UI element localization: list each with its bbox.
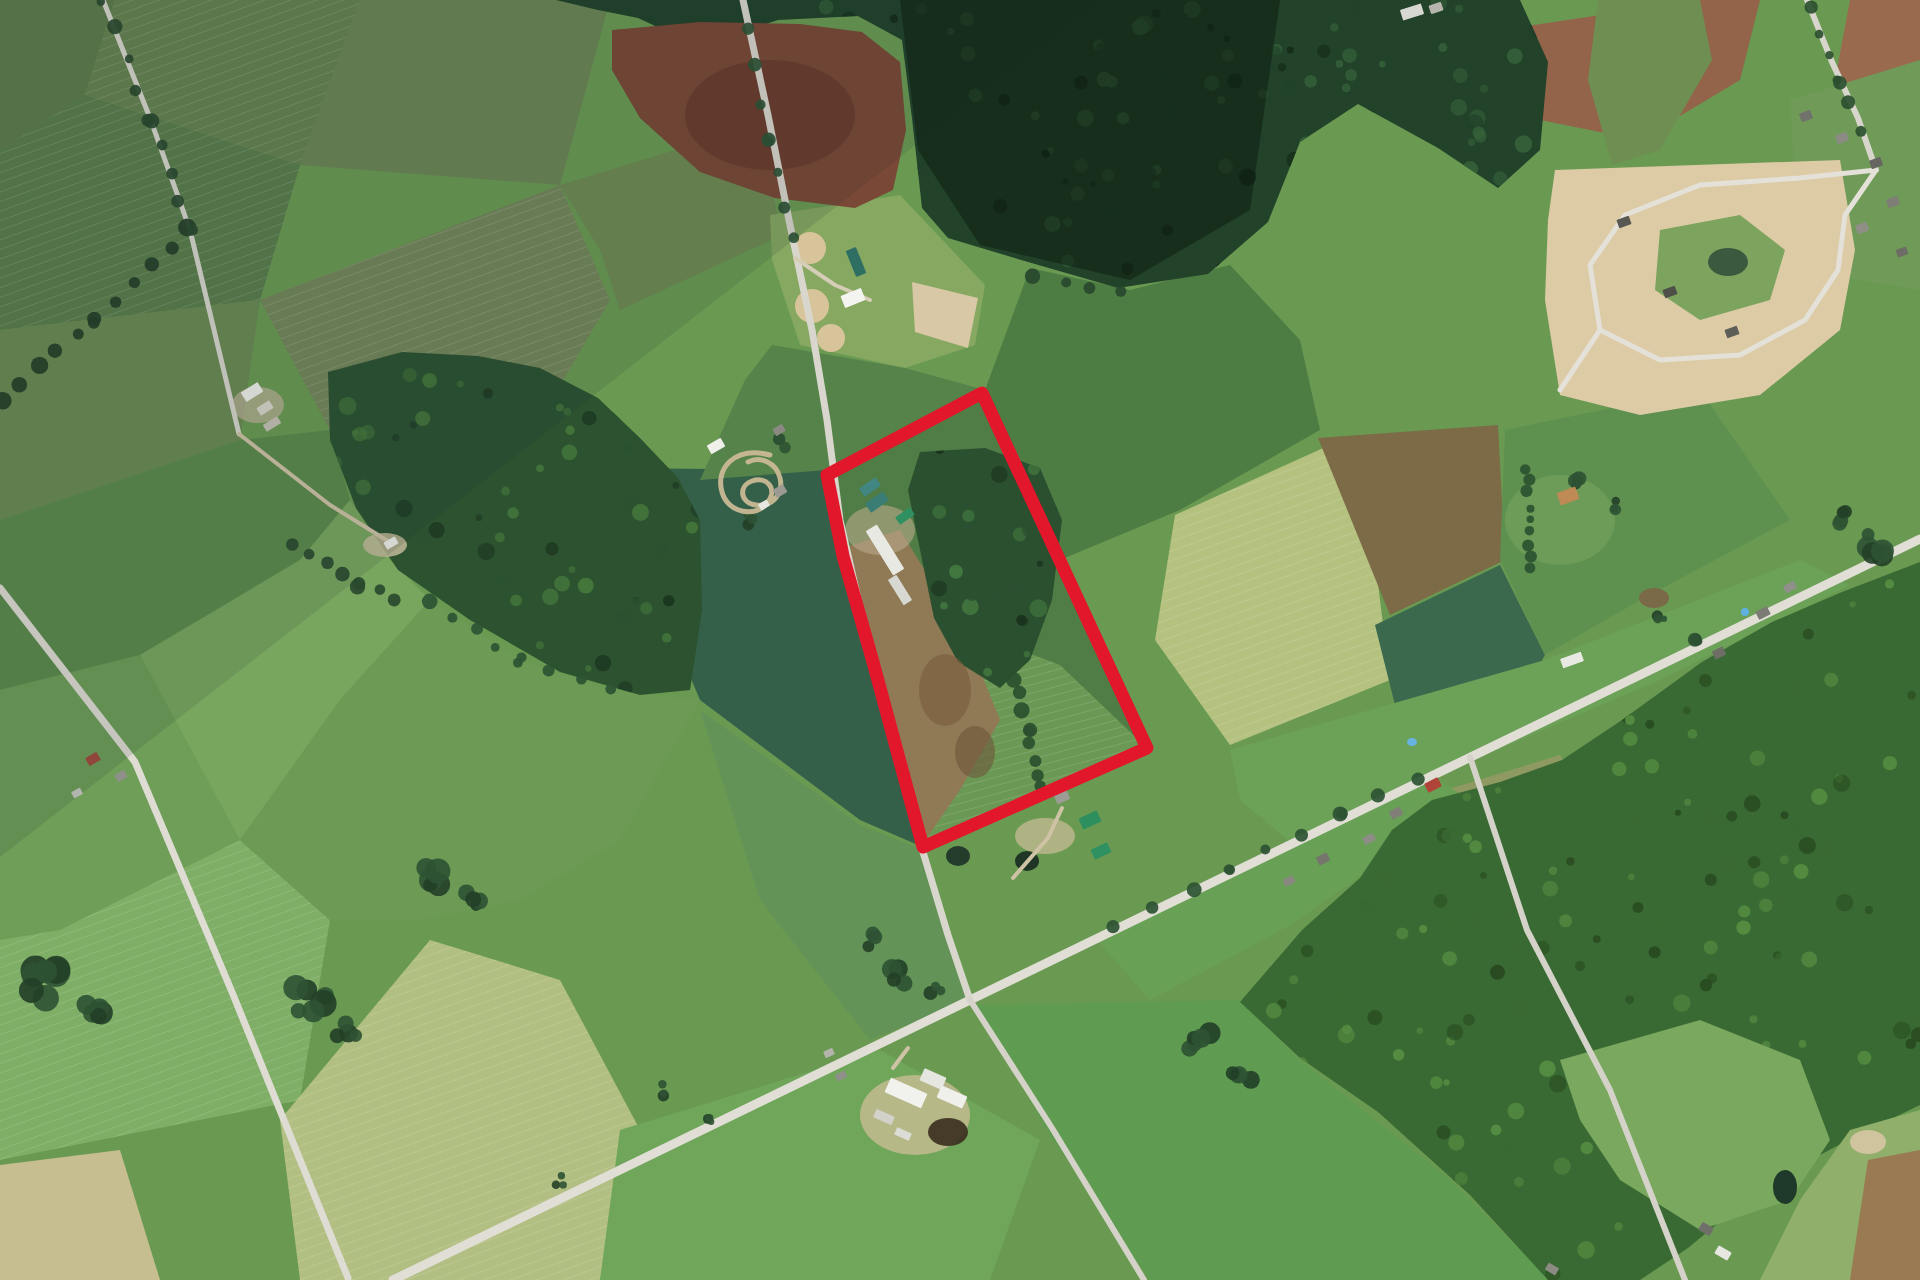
canopy-dot — [1472, 792, 1478, 798]
canopy-dot — [1675, 810, 1681, 816]
tree-dot — [422, 594, 438, 610]
tree-dot — [779, 442, 791, 454]
canopy-dot — [1883, 756, 1897, 770]
canopy-dot — [662, 633, 672, 643]
canopy-dot — [1468, 139, 1475, 146]
tree-dot — [1023, 737, 1036, 750]
canopy-dot — [1430, 1076, 1443, 1089]
canopy-dot — [1803, 629, 1814, 640]
canopy-dot — [1419, 925, 1427, 933]
canopy-dot — [582, 411, 597, 426]
canopy-dot — [663, 595, 674, 606]
tree-dot — [1006, 672, 1022, 688]
canopy-dot — [1504, 1144, 1511, 1151]
tree-dot — [447, 613, 457, 623]
canopy-dot — [1764, 971, 1773, 980]
canopy-dot — [1629, 813, 1640, 824]
canopy-dot — [1029, 599, 1047, 617]
canopy-dot — [1019, 616, 1029, 626]
canopy-dot — [1744, 795, 1761, 812]
canopy-dot — [1379, 61, 1385, 67]
soil-blob — [955, 726, 995, 778]
canopy-dot — [478, 543, 495, 560]
tree-dot — [1115, 286, 1126, 297]
canopy-dot — [1396, 927, 1408, 939]
tree-dot — [1527, 505, 1535, 513]
canopy-dot — [1448, 1135, 1464, 1151]
manure-pond — [928, 1118, 968, 1146]
canopy-dot — [595, 655, 611, 671]
canopy-dot — [1704, 941, 1718, 955]
canopy-dot — [1753, 871, 1770, 888]
canopy-dot — [1450, 99, 1467, 116]
tree-dot — [1688, 633, 1702, 647]
canopy-dot — [1702, 811, 1717, 826]
pond — [946, 846, 970, 866]
tree-dot — [605, 684, 616, 695]
canopy-dot — [1683, 707, 1691, 715]
canopy-dot — [1722, 857, 1736, 871]
canopy-dot — [1463, 1014, 1475, 1026]
canopy-dot — [1726, 811, 1737, 822]
canopy-dot — [1893, 1021, 1911, 1039]
canopy-dot — [1907, 691, 1916, 700]
canopy-dot — [940, 206, 947, 213]
canopy-dot — [1442, 951, 1457, 966]
canopy-dot — [1463, 834, 1472, 843]
tree-dot — [471, 623, 483, 635]
canopy-dot — [932, 505, 946, 519]
canopy-dot — [983, 668, 992, 677]
canopy-dot — [498, 578, 507, 587]
canopy-dot — [1799, 837, 1816, 854]
tree-dot — [291, 1003, 306, 1018]
canopy-dot — [1749, 1015, 1757, 1023]
tree-dot — [1013, 686, 1026, 699]
canopy-dot — [1692, 861, 1706, 875]
canopy-dot — [1447, 1024, 1464, 1041]
canopy-dot — [1575, 961, 1585, 971]
tree-dot — [1525, 550, 1537, 562]
tree-dot — [349, 1029, 362, 1042]
canopy-dot — [1376, 1077, 1386, 1087]
canopy-dot — [1336, 60, 1344, 68]
canopy-dot — [1377, 869, 1392, 884]
canopy-dot — [1418, 78, 1426, 86]
tree-dot — [1295, 829, 1308, 842]
canopy-dot — [1766, 801, 1775, 810]
canopy-dot — [1792, 825, 1798, 831]
canopy-dot — [1495, 787, 1501, 793]
canopy-dot — [1342, 48, 1357, 63]
canopy-dot — [1514, 1177, 1524, 1187]
canopy-dot — [463, 564, 470, 571]
canopy-dot — [1278, 63, 1286, 71]
sand-patch — [1850, 1130, 1886, 1154]
canopy-dot — [1330, 23, 1338, 31]
canopy-dot — [1507, 48, 1523, 64]
tree-dot — [660, 1090, 667, 1097]
tree-dot — [491, 643, 500, 652]
canopy-dot — [1437, 1125, 1451, 1139]
canopy-dot — [962, 598, 979, 615]
canopy-dot — [1491, 1125, 1502, 1136]
canopy-dot — [1443, 1079, 1449, 1085]
canopy-dot — [1490, 965, 1505, 980]
canopy-dot — [1434, 894, 1448, 908]
tree-dot — [1815, 30, 1824, 39]
canopy-dot — [658, 545, 668, 555]
tree-dot — [1527, 516, 1534, 523]
canopy-dot — [1625, 995, 1634, 1004]
canopy-dot — [1581, 1174, 1589, 1182]
tree-dot — [1224, 865, 1234, 875]
canopy-dot — [616, 610, 630, 624]
canopy-dot — [1346, 1078, 1355, 1087]
canopy-dot — [1515, 135, 1532, 152]
pond-landscaped — [1708, 248, 1748, 276]
canopy-dot — [1865, 906, 1873, 914]
tree-dot — [1013, 702, 1029, 718]
tree-dot — [1833, 76, 1847, 90]
tree-dot — [560, 1181, 567, 1188]
tree-dot — [1412, 773, 1425, 786]
tree-dot — [1146, 901, 1159, 914]
canopy-dot — [1453, 68, 1468, 83]
canopy-dot — [1549, 1075, 1567, 1093]
canopy-dot — [1819, 843, 1833, 857]
tree-dot — [1061, 278, 1071, 288]
tree-dot — [1191, 1029, 1211, 1049]
canopy-dot — [578, 578, 594, 594]
canopy-dot — [1504, 814, 1513, 823]
tree-dot — [1187, 882, 1202, 897]
canopy-dot — [1750, 750, 1766, 766]
canopy-dot — [1345, 69, 1357, 81]
canopy-dot — [686, 522, 698, 534]
tree-dot — [19, 978, 44, 1003]
tree-dot — [1568, 473, 1583, 488]
tree-dot — [552, 1181, 561, 1190]
canopy-dot — [1707, 973, 1717, 983]
canopy-dot — [966, 591, 976, 601]
canopy-dot — [1295, 105, 1303, 113]
canopy-dot — [1833, 775, 1850, 792]
canopy-dot — [1780, 855, 1789, 864]
canopy-dot — [507, 507, 519, 519]
tree-dot — [1084, 282, 1096, 294]
canopy-dot — [1304, 75, 1317, 88]
tree-dot — [1029, 755, 1041, 767]
house-gravel — [1015, 818, 1075, 854]
canopy-dot — [1748, 856, 1760, 868]
canopy-dot — [1799, 1040, 1807, 1048]
canopy-dot — [1502, 89, 1509, 96]
swimming-pool — [1741, 608, 1749, 616]
canopy-dot — [1495, 1187, 1512, 1204]
tree-dot — [866, 927, 881, 942]
canopy-dot — [569, 566, 576, 573]
canopy-dot — [542, 589, 559, 606]
tree-dot — [465, 891, 481, 907]
canopy-dot — [1496, 1074, 1512, 1090]
canopy-dot — [979, 590, 994, 605]
swimming-pool — [1407, 738, 1417, 746]
tree-dot — [1336, 808, 1348, 820]
tree-dot — [748, 514, 758, 524]
canopy-dot — [1688, 729, 1698, 739]
canopy-dot — [545, 542, 558, 555]
canopy-dot — [1705, 874, 1717, 886]
canopy-dot — [1581, 1142, 1593, 1154]
canopy-dot — [1417, 1028, 1423, 1034]
tree-dot — [35, 960, 58, 983]
tree-dot — [936, 986, 945, 995]
canopy-dot — [1623, 732, 1637, 746]
canopy-dot — [585, 665, 591, 671]
tree-dot — [1226, 1066, 1240, 1080]
canopy-dot — [998, 608, 1014, 624]
tree-dot — [330, 1028, 345, 1043]
canopy-dot — [1759, 899, 1773, 913]
canopy-dot — [1367, 1010, 1382, 1025]
canopy-dot — [632, 504, 649, 521]
canopy-dot — [476, 515, 483, 522]
canopy-dot — [1864, 645, 1874, 655]
canopy-dot — [1463, 35, 1469, 41]
tree-dot — [1260, 845, 1270, 855]
canopy-dot — [1794, 864, 1809, 879]
canopy-dot — [640, 602, 652, 614]
canopy-dot — [1614, 1222, 1622, 1230]
canopy-dot — [536, 641, 544, 649]
tree-dot — [1522, 540, 1534, 552]
tree-dot — [1371, 788, 1385, 802]
canopy-dot — [1393, 1049, 1405, 1061]
canopy-dot — [1857, 1051, 1871, 1065]
canopy-dot — [1836, 894, 1853, 911]
canopy-dot — [1801, 951, 1817, 967]
tree-dot — [1525, 526, 1535, 536]
canopy-dot — [1468, 913, 1479, 924]
canopy-dot — [1781, 811, 1789, 819]
tree-dot — [1825, 51, 1833, 59]
canopy-dot — [1008, 582, 1023, 597]
tree-dot — [283, 975, 308, 1000]
canopy-dot — [1515, 1000, 1530, 1015]
satellite-map-image — [0, 0, 1920, 1280]
canopy-dot — [1480, 872, 1487, 879]
canopy-dot — [1317, 45, 1330, 58]
canopy-dot — [1612, 762, 1627, 777]
tree-dot — [425, 859, 450, 884]
canopy-dot — [1037, 561, 1043, 567]
canopy-dot — [1024, 651, 1030, 657]
tree-dot — [1653, 614, 1662, 623]
canopy-dot — [1684, 799, 1691, 806]
canopy-dot — [595, 429, 604, 438]
canopy-dot — [536, 465, 544, 473]
canopy-dot — [1335, 990, 1350, 1005]
tree-dot — [1106, 920, 1119, 933]
canopy-dot — [1266, 1003, 1282, 1019]
canopy-dot — [949, 565, 963, 579]
tree-dot — [1025, 269, 1040, 284]
canopy-dot — [1673, 994, 1691, 1012]
canopy-dot — [510, 594, 522, 606]
canopy-dot — [1775, 953, 1784, 962]
canopy-dot — [1539, 1060, 1556, 1077]
canopy-dot — [1455, 5, 1463, 13]
canopy-dot — [495, 533, 505, 543]
canopy-dot — [1474, 130, 1486, 142]
canopy-dot — [1645, 759, 1659, 773]
canopy-dot — [1378, 1061, 1389, 1072]
tree-dot — [543, 664, 555, 676]
canopy-dot — [940, 602, 948, 610]
canopy-dot — [673, 482, 680, 489]
soil-blob — [919, 654, 971, 726]
canopy-dot — [562, 444, 578, 460]
tree-dot — [1841, 95, 1855, 109]
canopy-dot — [565, 426, 574, 435]
tree-dot — [1520, 485, 1532, 497]
canopy-dot — [1577, 1241, 1595, 1259]
canopy-dot — [621, 443, 631, 453]
tree-dot — [1610, 504, 1622, 516]
tree-dot — [1525, 563, 1536, 574]
canopy-dot — [1506, 1119, 1513, 1126]
canopy-dot — [1789, 684, 1799, 694]
tree-dot — [1871, 539, 1894, 562]
canopy-dot — [1495, 74, 1502, 81]
canopy-dot — [1504, 908, 1513, 917]
canopy-dot — [1447, 920, 1455, 928]
canopy-dot — [1782, 753, 1798, 769]
canopy-dot — [991, 466, 1008, 483]
canopy-dot — [1438, 43, 1447, 52]
tree-dot — [658, 1080, 666, 1088]
pond-muddy — [1639, 588, 1669, 608]
canopy-dot — [1906, 1039, 1917, 1050]
canopy-dot — [501, 487, 510, 496]
ball-diamond — [817, 324, 845, 352]
canopy-dot — [1289, 975, 1298, 984]
canopy-dot — [1885, 579, 1894, 588]
tree-dot — [1855, 126, 1866, 137]
canopy-dot — [1480, 85, 1488, 93]
canopy-dot — [1553, 1157, 1570, 1174]
tree-dot — [1805, 0, 1818, 13]
canopy-dot — [1632, 902, 1643, 913]
tree-dot — [77, 995, 97, 1015]
canopy-dot — [1593, 935, 1601, 943]
canopy-dot — [1738, 905, 1750, 917]
canopy-dot — [1287, 47, 1294, 54]
tree-dot — [887, 973, 901, 987]
tree-dot — [1023, 723, 1037, 737]
tree-dot — [1837, 506, 1849, 518]
tree-dot — [388, 593, 401, 606]
canopy-dot — [1301, 945, 1313, 957]
canopy-dot — [1463, 793, 1471, 801]
tree-dot — [375, 584, 386, 595]
canopy-dot — [1351, 0, 1367, 15]
canopy-dot — [962, 510, 974, 522]
canopy-dot — [1302, 91, 1312, 101]
canopy-dot — [1773, 897, 1782, 906]
canopy-dot — [1508, 1103, 1525, 1120]
tree-dot — [705, 1114, 713, 1122]
aerial-photo-stage — [0, 0, 1920, 1280]
canopy-dot — [554, 576, 570, 592]
canopy-dot — [1442, 828, 1457, 843]
canopy-dot — [1559, 914, 1572, 927]
canopy-dot — [931, 580, 947, 596]
tree-dot — [1520, 464, 1530, 474]
tree-dot — [558, 1172, 565, 1179]
canopy-dot — [1811, 789, 1827, 805]
canopy-dot — [1736, 920, 1750, 934]
canopy-dot — [1770, 912, 1785, 927]
tree-dot — [517, 652, 527, 662]
canopy-dot — [1649, 946, 1661, 958]
canopy-dot — [1824, 673, 1838, 687]
canopy-dot — [1360, 899, 1373, 912]
canopy-dot — [1514, 945, 1522, 953]
canopy-dot — [1549, 867, 1558, 876]
tree-dot — [576, 674, 587, 685]
tree-dot — [1031, 769, 1043, 781]
canopy-dot — [1566, 857, 1574, 865]
canopy-dot — [1342, 1025, 1352, 1035]
canopy-dot — [1850, 601, 1856, 607]
canopy-dot — [1542, 881, 1558, 897]
canopy-dot — [1283, 79, 1295, 91]
canopy-dot — [1652, 917, 1666, 931]
canopy-dot — [1469, 840, 1482, 853]
canopy-dot — [1531, 775, 1547, 791]
canopy-dot — [1628, 874, 1635, 881]
pond-forest-clearing — [1773, 1170, 1797, 1204]
canopy-dot — [1645, 720, 1654, 729]
canopy-dot — [1342, 83, 1351, 92]
tree-dot — [1523, 474, 1535, 486]
canopy-dot — [1699, 674, 1712, 687]
